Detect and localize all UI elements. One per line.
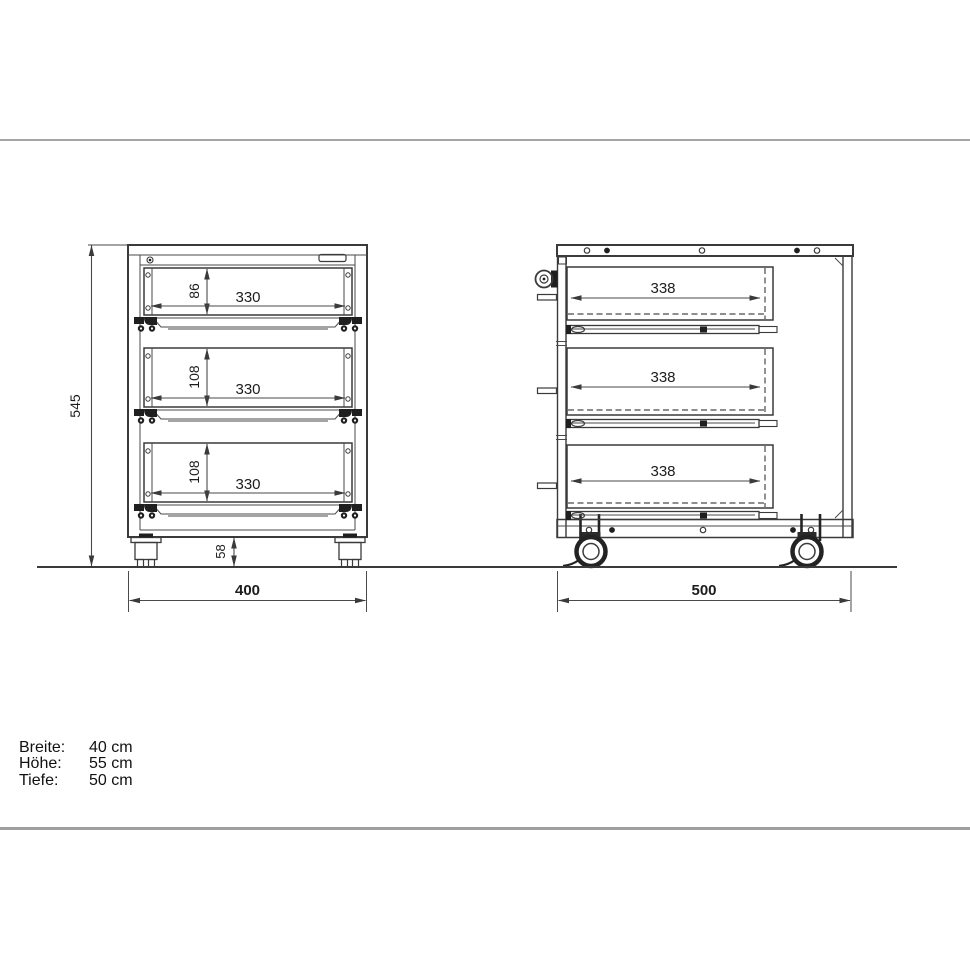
spec-list: Breite:40 cm Höhe:55 cm Tiefe:50 cm bbox=[19, 740, 133, 789]
side-drawer3-depth-label: 338 bbox=[650, 463, 675, 480]
spec-value-hoehe: 55 cm bbox=[89, 755, 133, 772]
side-view-drawing: 338 338 338 bbox=[536, 245, 854, 566]
front-drawer-2: 108 330 bbox=[134, 348, 362, 424]
spec-label-hoehe: Höhe: bbox=[19, 756, 89, 772]
dimension-total-height: 545 bbox=[67, 245, 127, 566]
front-drawer-1: 86 330 bbox=[134, 268, 362, 332]
drawer2-height-label: 108 bbox=[186, 365, 202, 389]
dimension-total-width: 400 bbox=[129, 571, 367, 612]
total-width-label: 400 bbox=[235, 582, 260, 599]
spec-row-breite: Breite:40 cm bbox=[19, 740, 133, 756]
spec-label-breite: Breite: bbox=[19, 740, 89, 756]
spec-row-tiefe: Tiefe:50 cm bbox=[19, 773, 133, 789]
side-drawer1-handle bbox=[538, 295, 557, 301]
drawer3-height-label: 108 bbox=[186, 460, 202, 484]
spec-value-breite: 40 cm bbox=[89, 739, 133, 756]
front-drawer-3: 108 330 bbox=[134, 443, 362, 519]
product-dimension-sheet: 86 330 108 330 bbox=[0, 0, 970, 971]
side-lock-cylinder bbox=[536, 271, 558, 288]
side-drawer1-depth-label: 338 bbox=[650, 280, 675, 297]
drawer3-width-label: 330 bbox=[235, 476, 260, 493]
front-lock-plate bbox=[319, 255, 346, 262]
drawer1-height-label: 86 bbox=[186, 283, 202, 299]
front-left-caster bbox=[131, 534, 161, 568]
side-drawer-2: 338 bbox=[566, 348, 777, 428]
spec-row-hoehe: Höhe:55 cm bbox=[19, 756, 133, 772]
front-view-drawing: 86 330 108 330 bbox=[128, 245, 367, 567]
spec-value-tiefe: 50 cm bbox=[89, 772, 133, 789]
technical-drawing-svg: 86 330 108 330 bbox=[0, 0, 970, 971]
dimension-total-depth: 500 bbox=[558, 571, 852, 612]
side-drawer3-handle bbox=[538, 483, 557, 489]
caster-height-label: 58 bbox=[213, 544, 228, 558]
side-drawer2-depth-label: 338 bbox=[650, 369, 675, 386]
total-height-label: 545 bbox=[67, 394, 83, 418]
side-drawer-3: 338 bbox=[566, 445, 777, 520]
front-right-caster bbox=[335, 534, 365, 568]
drawer2-width-label: 330 bbox=[235, 381, 260, 398]
total-depth-label: 500 bbox=[691, 582, 716, 599]
dimension-caster-height: 58 bbox=[213, 538, 234, 566]
side-drawer-1: 338 bbox=[566, 267, 777, 334]
drawer1-width-label: 330 bbox=[235, 289, 260, 306]
spec-label-tiefe: Tiefe: bbox=[19, 773, 89, 789]
side-drawer2-handle bbox=[538, 388, 557, 394]
